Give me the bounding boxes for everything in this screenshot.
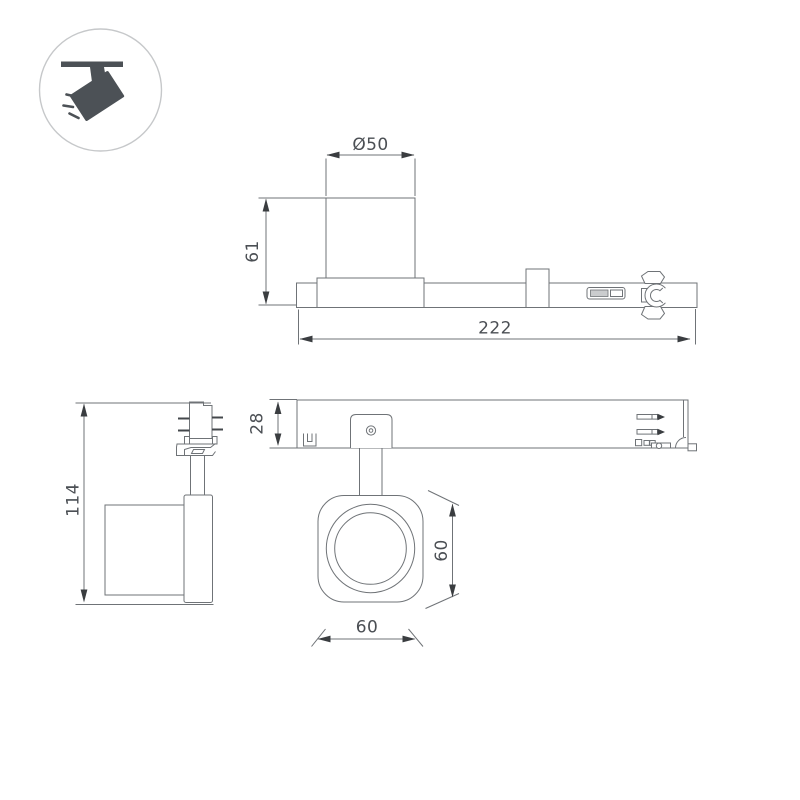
- technical-drawing: Ø50 61 222: [0, 0, 800, 800]
- yoke-bracket: [184, 495, 213, 603]
- head-stem: [360, 449, 383, 497]
- track-end-connector: [642, 272, 675, 320]
- slide-switch: [587, 288, 625, 300]
- dim-label-head-height: 60: [432, 539, 452, 561]
- lamp-body-side: [105, 505, 184, 595]
- side-view: Ø50 61 222: [243, 135, 697, 345]
- spring-clip-top: [642, 272, 665, 284]
- icon-ceiling-bar: [61, 62, 123, 68]
- dimension-head-height-60: 60: [426, 491, 460, 609]
- plan-view: 28 60 60: [248, 400, 697, 647]
- fixture-base: [317, 278, 424, 308]
- dimension-diameter-50: Ø50: [326, 135, 415, 196]
- yoke-stem: [191, 456, 205, 497]
- head-housing: [318, 496, 423, 603]
- dim-label-diameter: Ø50: [352, 135, 388, 155]
- dim-label-head-width: 60: [356, 618, 378, 638]
- dim-label-length: 222: [478, 319, 512, 339]
- dimension-rail-height-28: 28: [248, 400, 298, 449]
- dim-label-height-114: 114: [64, 483, 84, 517]
- dim-label-height-61: 61: [243, 240, 263, 262]
- lamp-head-front: [318, 496, 423, 603]
- mount-plate: [351, 415, 393, 449]
- locking-hook: [177, 444, 216, 456]
- dim-label-rail-height: 28: [248, 412, 268, 434]
- cylinder-body: [326, 198, 415, 278]
- front-view: 114: [64, 402, 224, 605]
- ceiling-track-spotlight-icon: [40, 29, 162, 151]
- dimension-head-width-60: 60: [312, 618, 424, 647]
- spring-clip-bottom: [642, 307, 665, 320]
- dimension-length-222: 222: [299, 309, 696, 345]
- track-adapter: [190, 402, 213, 440]
- mount-boss: [526, 269, 549, 308]
- drawing-svg: Ø50 61 222: [0, 0, 800, 800]
